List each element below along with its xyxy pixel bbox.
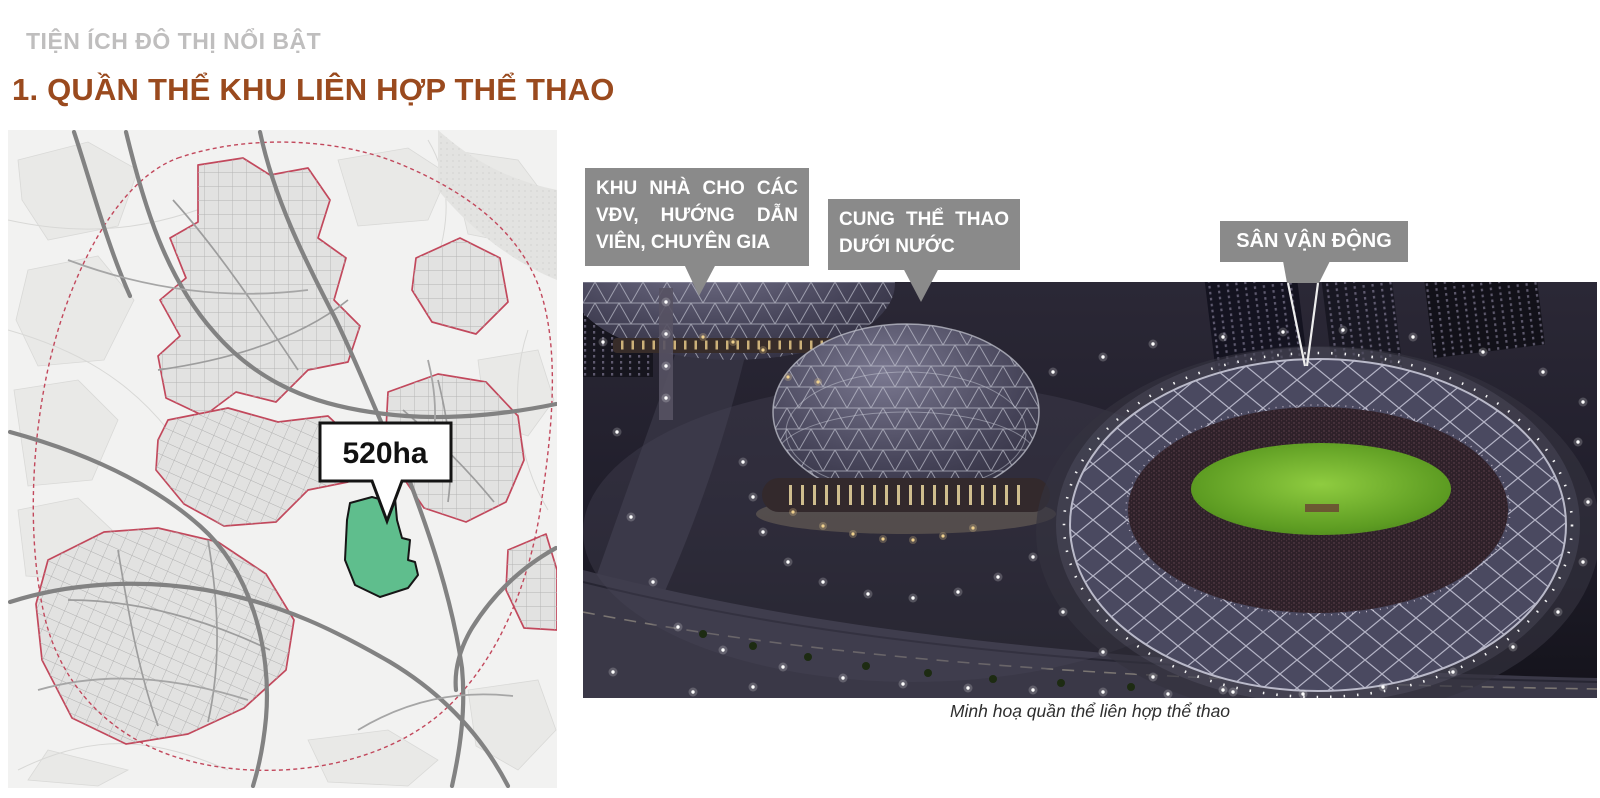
location-map-graphic: 520ha xyxy=(8,130,557,788)
image-caption: Minh hoạ quần thể liên hợp thể thao xyxy=(583,701,1597,722)
complex-render-image xyxy=(583,282,1597,698)
slide-eyebrow: TIỆN ÍCH ĐÔ THỊ NỔI BẬT xyxy=(26,28,321,55)
callout-stadium: SÂN VẬN ĐỘNG xyxy=(1220,221,1408,262)
callout-line: KHU NHÀ CHO CÁC xyxy=(596,176,798,203)
callout-line: DƯỚI NƯỚC xyxy=(839,234,1009,261)
callout-line: SÂN VẬN ĐỘNG xyxy=(1236,230,1392,252)
area-callout-label: 520ha xyxy=(342,437,427,470)
stadium-pitch xyxy=(1191,443,1451,535)
callout-line: CUNG THỂ THAO xyxy=(839,207,1009,234)
callout-line: VIÊN, CHUYÊN GIA xyxy=(596,230,798,257)
pointer-stadium-base xyxy=(1283,261,1330,283)
complex-render-graphic xyxy=(583,282,1597,698)
callout-line: VĐV, HƯỚNG DẪN xyxy=(596,203,798,230)
location-map: 520ha xyxy=(8,130,557,788)
tower xyxy=(659,288,673,420)
callout-athletes-housing: KHU NHÀ CHO CÁC VĐV, HƯỚNG DẪN VIÊN, CHU… xyxy=(585,168,809,266)
callout-aquatics-palace: CUNG THỂ THAO DƯỚI NƯỚC xyxy=(828,199,1020,270)
page-title: 1. QUẦN THỂ KHU LIÊN HỢP THỂ THAO xyxy=(12,72,615,108)
